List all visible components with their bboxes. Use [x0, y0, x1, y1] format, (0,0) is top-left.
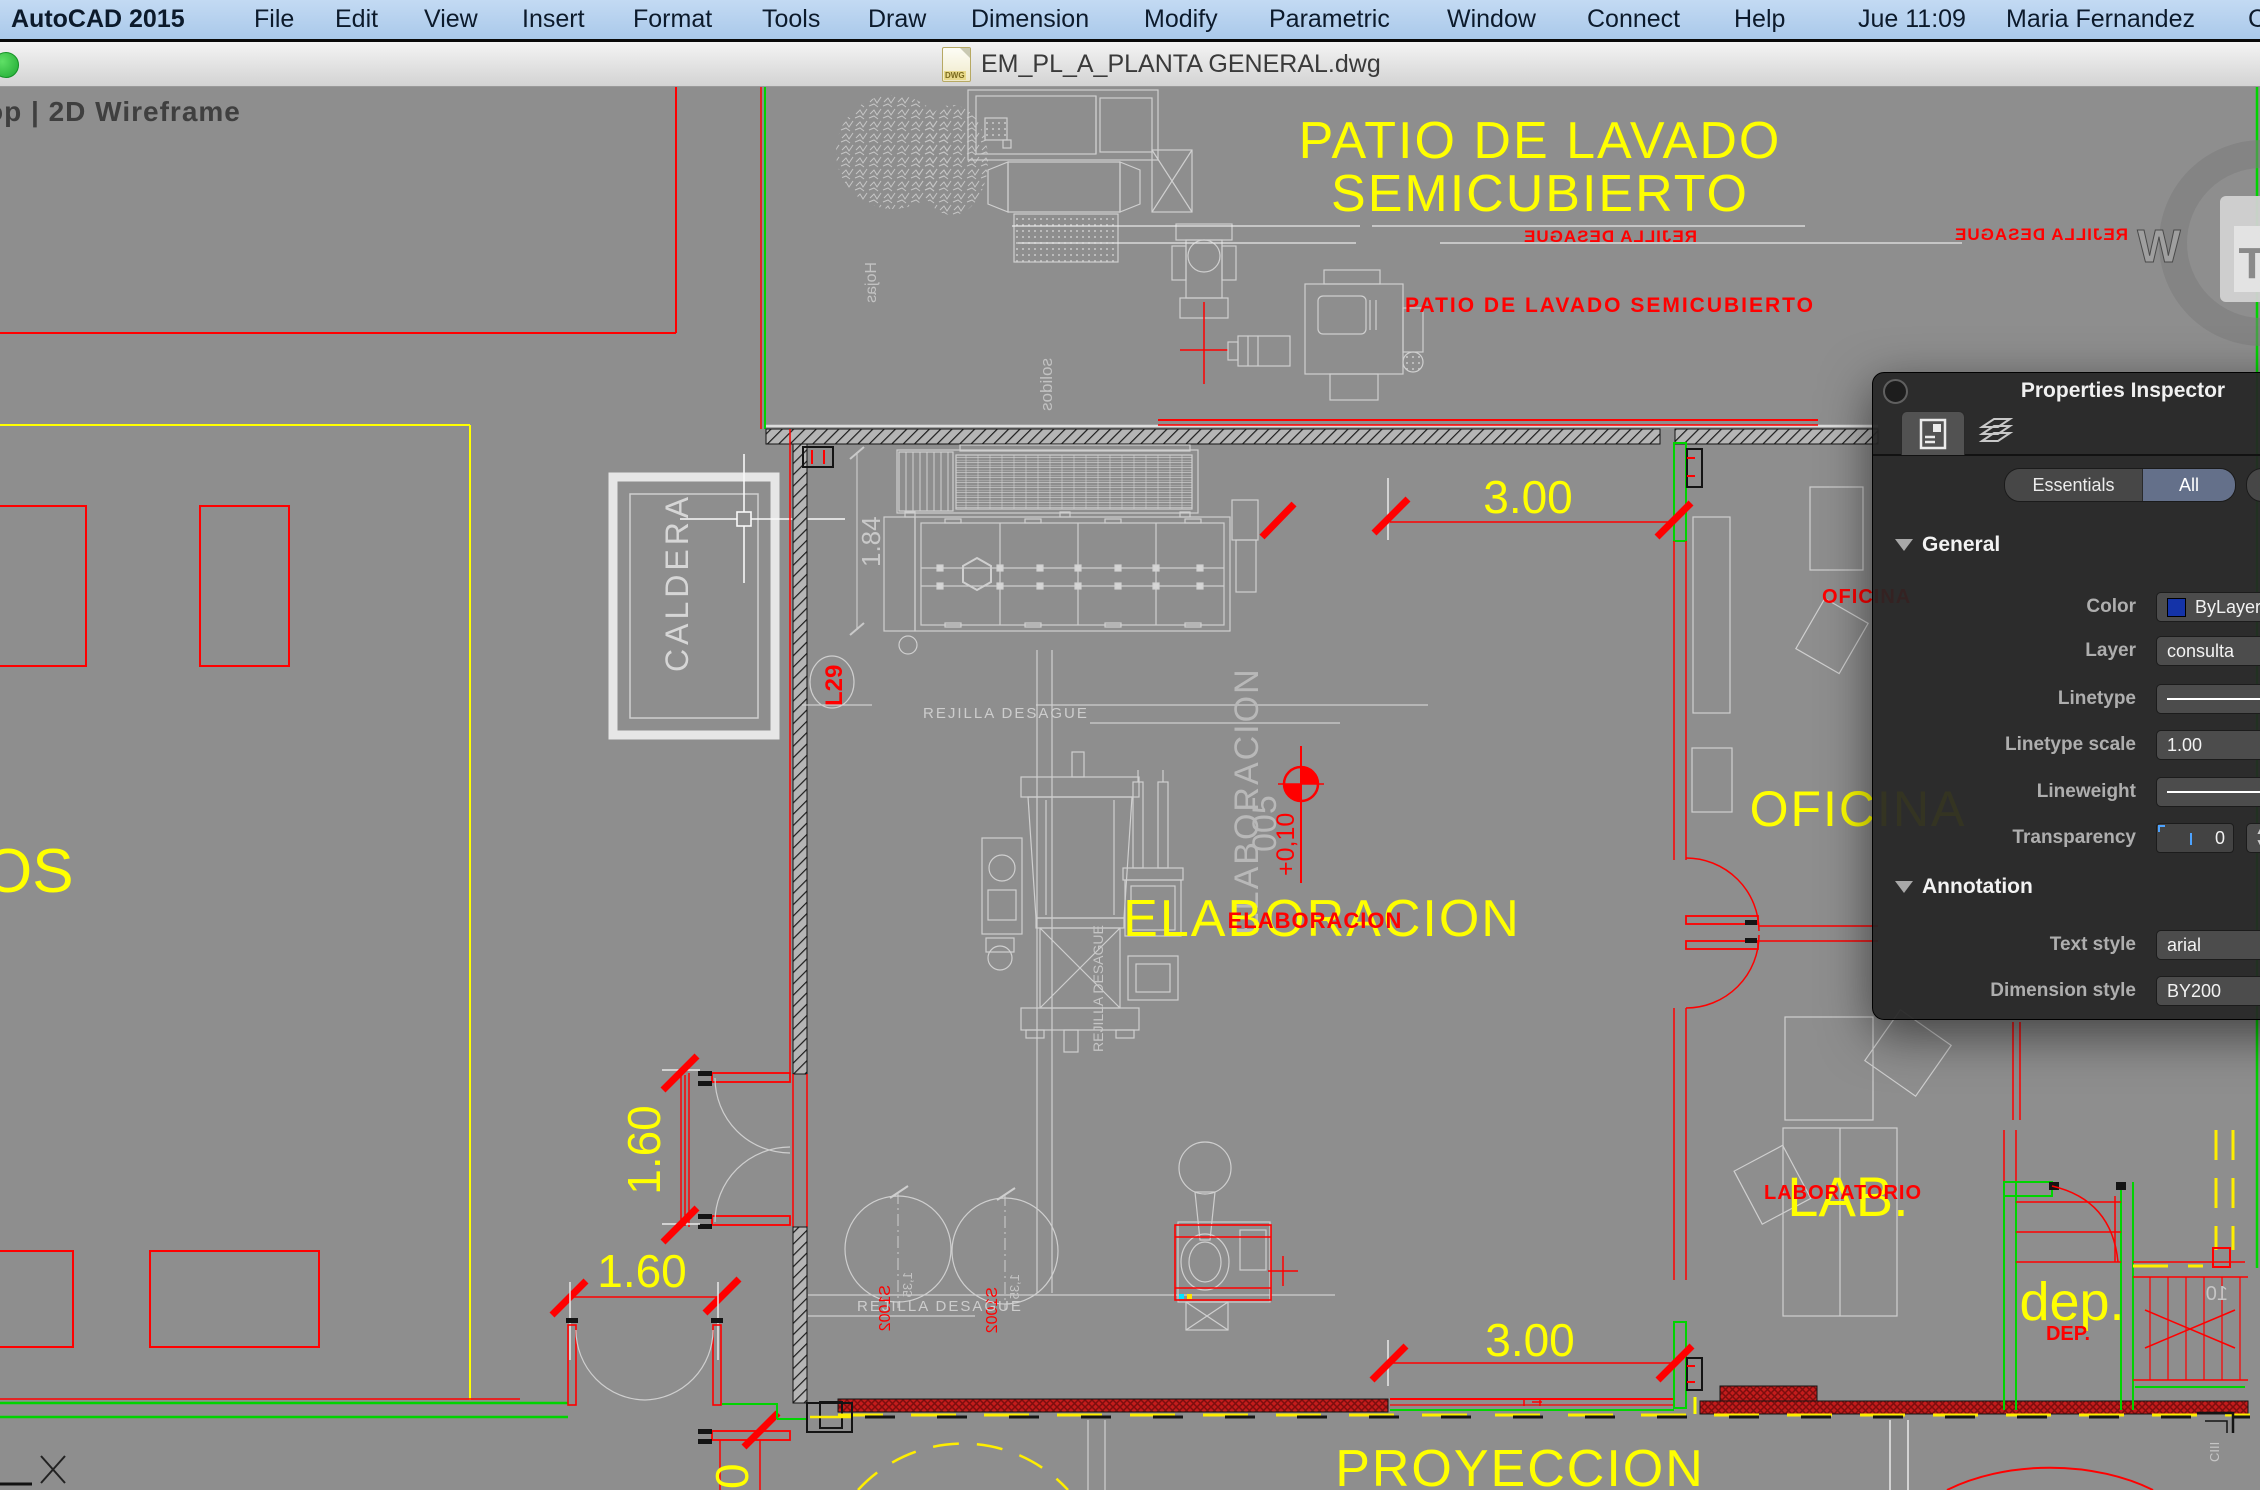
rejilla-bottom-label: REJILLA DESAGUE — [857, 1298, 1023, 1315]
menu-parametric[interactable]: Parametric — [1269, 0, 1390, 39]
menu-app-name[interactable]: AutoCAD 2015 — [11, 0, 185, 39]
text-style-field[interactable]: arial — [2156, 930, 2260, 960]
menu-connect[interactable]: Connect — [1587, 0, 1680, 39]
menu-insert[interactable]: Insert — [522, 0, 585, 39]
dimension-style-value: BY200 — [2167, 976, 2221, 1006]
tank2-gray-label: 1,35 — [1007, 1274, 1022, 1299]
section-annotation-label: Annotation — [1922, 875, 2033, 898]
segment-all[interactable]: All — [2142, 469, 2235, 501]
properties-inspector-panel: Properties Inspector Essentials All Gene… — [1872, 372, 2260, 1020]
dim-184-text: 1.84 — [856, 516, 886, 567]
text-style-label: Text style — [1873, 930, 2136, 960]
menu-extra-icon[interactable]: C — [2248, 0, 2260, 39]
panel-tab-row — [1873, 408, 2260, 456]
document-filename: EM_PL_A_PLANTA GENERAL.dwg — [981, 50, 1381, 79]
color-field[interactable]: ByLayer — [2156, 592, 2260, 622]
patio-red-label: PATIO DE LAVADO SEMICUBIERTO — [1405, 294, 1815, 317]
extra-segment-cut[interactable] — [2246, 468, 2260, 502]
menu-help[interactable]: Help — [1734, 0, 1785, 39]
section-annotation[interactable]: Annotation — [1895, 875, 2033, 899]
viewport-controls[interactable]: op | 2D Wireframe — [0, 96, 241, 128]
os-label: OS — [0, 837, 74, 906]
transparency-value: 0 — [2215, 828, 2225, 848]
ciii-label: CIII — [2207, 1442, 2222, 1462]
transparency-label: Transparency — [1873, 823, 2136, 853]
conveyor-machine — [897, 445, 1198, 517]
dim-0-text: 0 — [706, 1463, 758, 1489]
color-label: Color — [1873, 592, 2136, 622]
traffic-light-green[interactable] — [0, 52, 19, 78]
layer-value: consulta — [2167, 636, 2234, 666]
menu-dimension[interactable]: Dimension — [971, 0, 1089, 39]
autocad-window: W T CALDERA — [0, 0, 2260, 1490]
rejilla-mirrored-2: REJILLA DESAGUE — [1954, 225, 2128, 244]
dwg-file-icon — [942, 47, 971, 82]
menu-tools[interactable]: Tools — [762, 0, 820, 39]
menu-format[interactable]: Format — [633, 0, 712, 39]
dim-160-h-text: 1.60 — [597, 1245, 687, 1297]
linetype-scale-value: 1.00 — [2167, 730, 2202, 760]
viewcube-top-label[interactable]: T — [2239, 239, 2260, 288]
hojas-label: Hojas — [863, 262, 880, 303]
menu-modify[interactable]: Modify — [1144, 0, 1218, 39]
menu-clock[interactable]: Jue 11:09 — [1858, 0, 1966, 39]
rejilla-room-label: REJILLA DESAGUE — [923, 705, 1089, 722]
menu-draw[interactable]: Draw — [868, 0, 926, 39]
color-value: ByLayer — [2195, 592, 2260, 622]
layer-label: Layer — [1873, 636, 2136, 666]
layer-field[interactable]: consulta — [2156, 636, 2260, 666]
essentials-all-switch[interactable]: Essentials All — [2004, 468, 2236, 502]
patio-trees — [836, 95, 988, 215]
linetype-sample — [2167, 698, 2260, 700]
menu-separator — [0, 39, 2260, 42]
section-general-label: General — [1922, 533, 2000, 556]
layers-icon — [1978, 417, 2014, 449]
dimension-style-field[interactable]: BY200 — [2156, 976, 2260, 1006]
lineweight-sample — [2167, 791, 2260, 793]
l29-text: L29 — [821, 665, 848, 706]
laboratorio-red: LABORATORIO — [1764, 1182, 1922, 1204]
viewcube-west-label[interactable]: W — [2137, 220, 2181, 272]
menu-bar: AutoCAD 2015 File Edit View Insert Forma… — [0, 0, 2260, 39]
panel-title: Properties Inspector — [1873, 379, 2260, 403]
patio-title-line1: PATIO DE LAVADO — [1299, 112, 1782, 170]
menu-file[interactable]: File — [254, 0, 294, 39]
properties-icon — [1919, 418, 1947, 450]
transparency-field[interactable]: 0 — [2156, 823, 2234, 853]
stair-number: 10 — [2206, 1283, 2228, 1305]
linetype-scale-field[interactable]: 1.00 — [2156, 730, 2260, 760]
menu-user[interactable]: Maria Fernandez — [2006, 0, 2195, 39]
rejilla-vert-label: REJILLA DESAGUE — [1090, 925, 1106, 1052]
linetype-label: Linetype — [1873, 684, 2136, 714]
linetype-field[interactable] — [2156, 684, 2260, 714]
elaboracion-red: ELABORACION — [1228, 908, 1403, 933]
dim-300-bottom-text: 3.00 — [1485, 1314, 1575, 1366]
color-swatch — [2167, 598, 2186, 617]
lineweight-label: Lineweight — [1873, 777, 2136, 807]
patio-title-line2: SEMICUBIERTO — [1331, 165, 1749, 223]
linetype-scale-label: Linetype scale — [1873, 730, 2136, 760]
elaboracion-005: 005 — [1246, 795, 1284, 852]
tab-properties[interactable] — [1901, 411, 1965, 455]
section-general[interactable]: General — [1895, 533, 2000, 557]
menu-view[interactable]: View — [424, 0, 478, 39]
rejilla-mirrored-1: REJILLA DESAGUE — [1523, 227, 1697, 246]
text-style-value: arial — [2167, 930, 2201, 960]
lineweight-field[interactable] — [2156, 777, 2260, 807]
menu-window[interactable]: Window — [1447, 0, 1536, 39]
dim-300-top-text: 3.00 — [1483, 471, 1573, 523]
solidos-label: solidos — [1037, 358, 1056, 411]
tank1-gray-label: 1,35 — [900, 1272, 915, 1297]
dim-160-v-text: 1.60 — [618, 1105, 670, 1195]
tab-layers[interactable] — [1965, 411, 2027, 454]
dep-red: DEP. — [2046, 1323, 2090, 1345]
dimension-style-label: Dimension style — [1873, 976, 2136, 1006]
menu-edit[interactable]: Edit — [335, 0, 378, 39]
document-title-bar[interactable]: EM_PL_A_PLANTA GENERAL.dwg — [0, 42, 2260, 87]
segment-essentials[interactable]: Essentials — [2005, 469, 2142, 501]
transparency-stepper[interactable]: ▲▼ — [2246, 823, 2260, 853]
proyeccion-label: PROYECCION — [1335, 1440, 1705, 1490]
